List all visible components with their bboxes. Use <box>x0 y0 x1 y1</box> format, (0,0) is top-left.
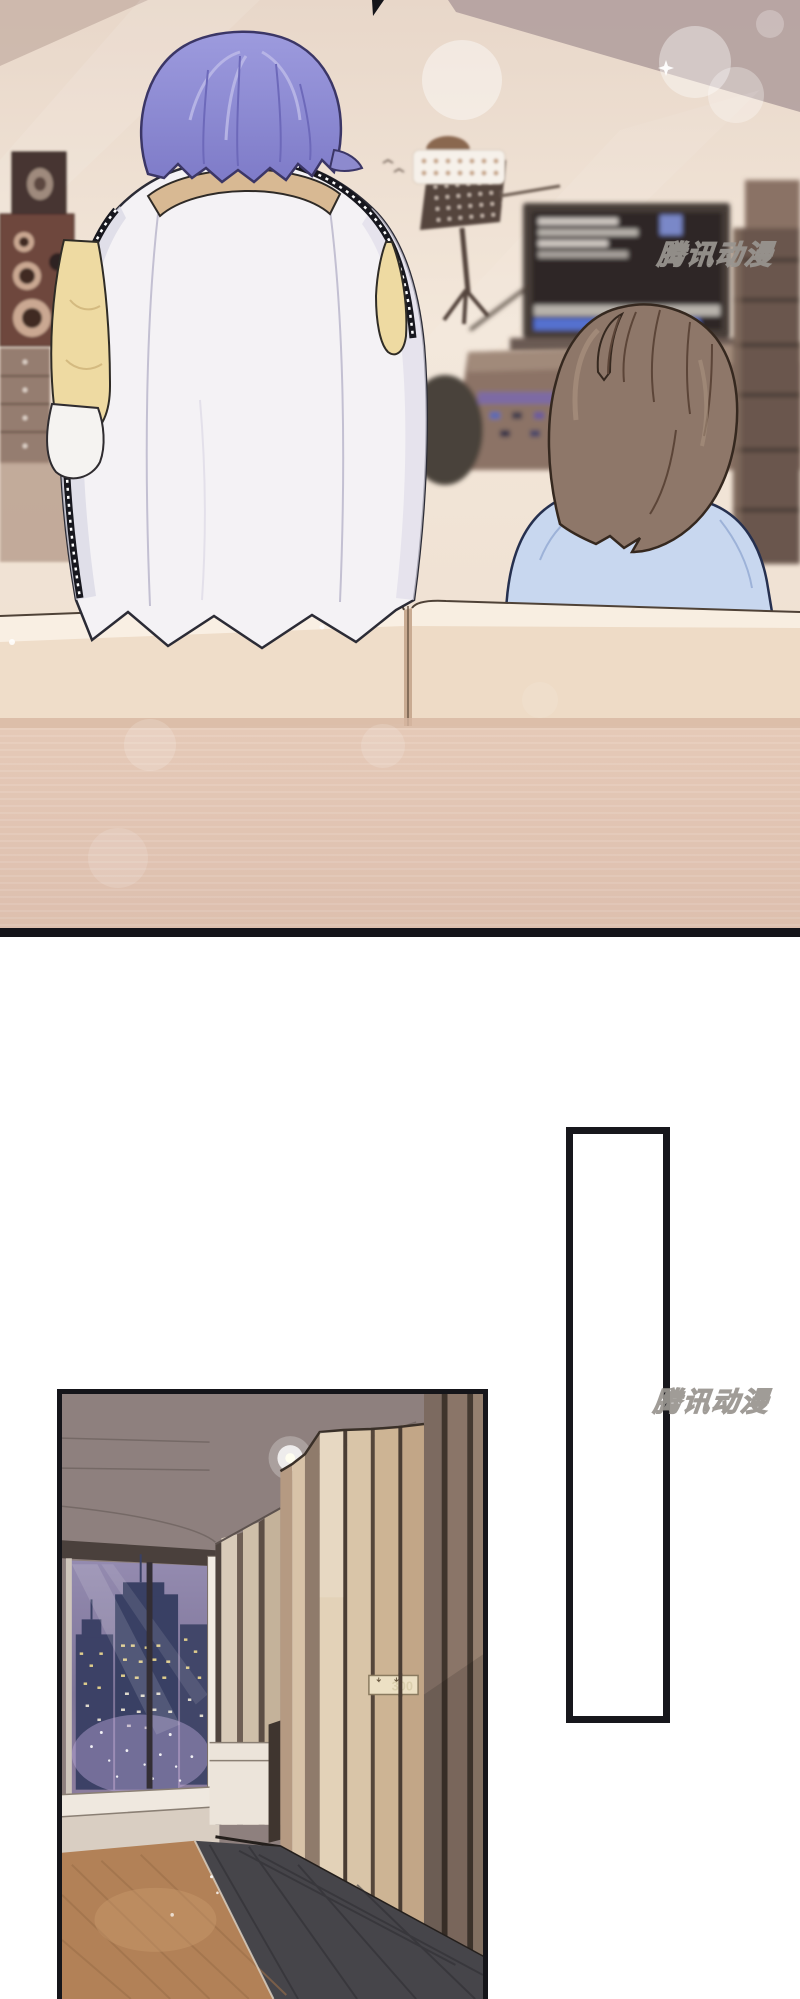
speech-bubble <box>566 1127 670 1723</box>
panel-studio <box>0 0 800 937</box>
door-sign: 300 <box>369 1673 418 1696</box>
window-mullion <box>147 1562 153 1788</box>
white-cuff <box>47 404 104 478</box>
watermark-tencent-comics: 腾讯动漫 <box>656 233 776 272</box>
window-city-view <box>62 1540 219 1855</box>
city-glow <box>72 1715 210 1795</box>
panel-hallway: 300 <box>57 1389 488 1999</box>
far-cabinet <box>210 1743 269 1825</box>
hallway-scene: 300 <box>62 1394 483 1999</box>
corridor-far-end <box>210 1508 281 1843</box>
comic-page: 腾讯动漫 腾讯动漫 <box>0 0 800 1999</box>
watermark-tencent-comics: 腾讯动漫 <box>652 1380 772 1419</box>
studio-scene <box>0 0 800 937</box>
panel-border-bottom <box>0 928 800 937</box>
